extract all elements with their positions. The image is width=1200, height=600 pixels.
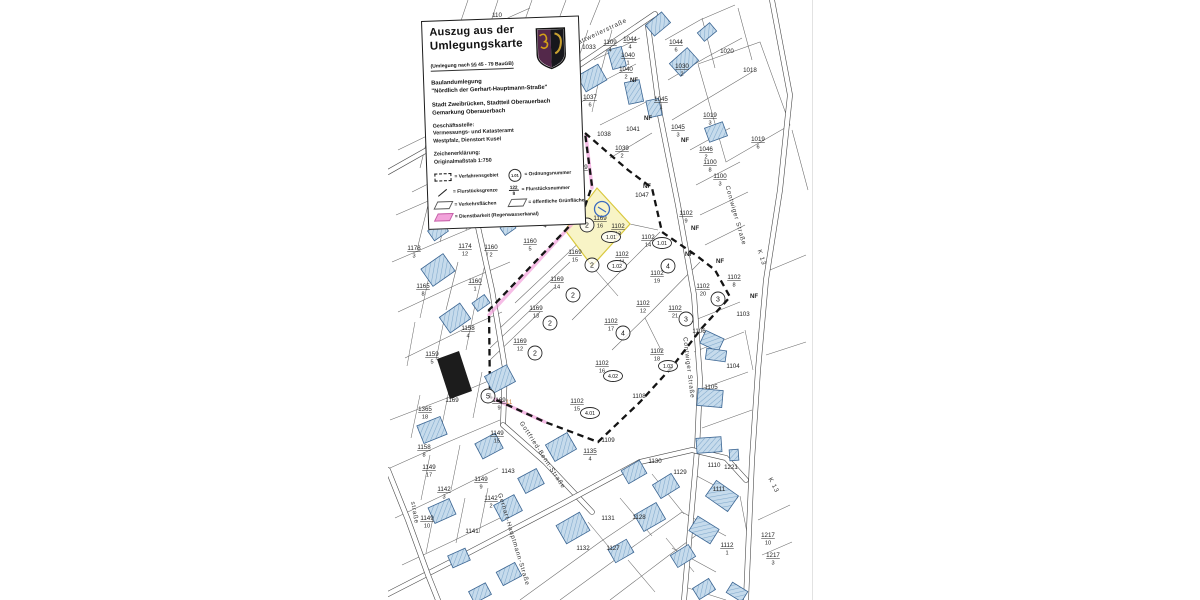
parcel-number: 1039 (615, 145, 629, 152)
parcel-denominator: 20 (700, 292, 706, 298)
parcel-denominator: 9 (479, 485, 482, 491)
legend-item-label: = Flurstücksgrenze (453, 188, 498, 195)
parcel-boundary (770, 255, 806, 270)
parcel-number: 1160 (484, 244, 498, 251)
legend-item-label: = Verkehrsflächen (454, 201, 496, 207)
nf-label: NF (716, 259, 724, 265)
parcel-number: 1149 (474, 476, 488, 483)
legend-symbol-para (434, 213, 454, 222)
parcel-label: 1047 (635, 192, 649, 199)
parcel-denominator: 1 (473, 287, 476, 293)
parcel-number: 1044 (623, 36, 637, 43)
parcel-number: 1102 (696, 283, 710, 290)
parcel-number: 1102 (679, 210, 693, 217)
parcel-boundary (417, 205, 428, 250)
parcel-denominator: 2 (680, 72, 683, 78)
parcel-number: 1169 (568, 249, 582, 256)
parcel-label: 1020 (720, 48, 734, 55)
coat-of-arms (535, 27, 566, 70)
parcel-denominator: 4 (628, 45, 631, 51)
parcel-number: 1165 (416, 283, 430, 290)
parcel-label: 10376 (583, 94, 597, 109)
parcel-label: 1169 (445, 397, 459, 404)
legend-item: = Verkehrsflächen (435, 199, 507, 211)
parcel-number: 1169 (529, 305, 543, 312)
ordnungsnummer-value: 4 (621, 330, 625, 337)
nf-label: NF (644, 116, 652, 122)
parcel-boundary (700, 192, 748, 215)
ordnungsnummer-value: 3 (684, 316, 688, 323)
parcel-denominator: 12 (640, 309, 646, 315)
parcel-denominator: 19 (654, 279, 660, 285)
parcel-label: 11028 (727, 274, 741, 289)
parcel-number: 1102 (615, 251, 629, 258)
building-solid-black (437, 351, 472, 399)
nf-label: NF (685, 252, 693, 258)
parcel-denominator: 15 (574, 407, 580, 413)
parcel-label: 114917 (422, 464, 436, 479)
parcel-denominator: 15 (494, 439, 500, 445)
parcel-label: 11499 (474, 476, 488, 491)
parcel-label: 1141 (465, 528, 479, 535)
parcel-label: 1110 (708, 462, 721, 469)
parcel-number: 1217 (766, 552, 780, 559)
parcel-denominator: 6 (674, 48, 677, 54)
ordnungsnummer-value: 2 (533, 350, 537, 357)
parcel-label: 1130 (648, 458, 662, 465)
ordnungsnummer-value: 4.02 (608, 374, 618, 380)
parcel-denominator: 10 (424, 524, 430, 530)
parcel-denominator: 8 (732, 283, 735, 289)
legend-item: = Flurstücksgrenze (435, 186, 507, 198)
parcel-denominator: 2 (489, 504, 492, 510)
parcel-denominator: 13 (533, 314, 539, 320)
legend-item: 1228= Flurstücksnummer (509, 182, 584, 196)
parcel-label: 1038 (597, 131, 611, 138)
parcel-denominator: 4 (466, 334, 469, 340)
parcel-denominator: 8 (421, 292, 424, 298)
parcel-denominator: 12 (517, 347, 523, 353)
parcel-label: 116914 (550, 276, 564, 291)
parcel-number: 1045 (654, 96, 668, 103)
parcel-label: 110218 (650, 348, 664, 363)
parcel-label: 10453 (671, 124, 685, 139)
parcel-label: 1103 (736, 311, 750, 318)
parcel-number: 1100 (703, 159, 717, 166)
nf-label: NF (630, 78, 638, 84)
building (652, 473, 679, 498)
parcel-label: 116915 (568, 249, 582, 264)
parcel-denominator: 6 (756, 145, 759, 151)
parcel-number: 1030 (675, 63, 689, 70)
parcel-boundary (628, 560, 655, 592)
parcel-label: 1018 (743, 67, 757, 74)
legend-item: = Dienstbarkeit (Regenwasserkanal) (436, 208, 585, 222)
building (577, 64, 607, 92)
legend-item-label: = öffentliche Grünfläche (528, 198, 584, 205)
parcel-denominator: 3 (412, 254, 415, 260)
parcel-label: 11605 (523, 238, 537, 253)
legend-item-label: = Ordnungsnummer (524, 171, 571, 178)
parcel-denominator: 10 (765, 541, 771, 547)
parcel-number: 1102 (570, 398, 584, 405)
legend-symbol-para (433, 201, 453, 210)
legend-item-label: = Verfahrensgebiet (454, 173, 498, 180)
parcel-denominator: 3 (676, 133, 679, 139)
parcel-label: 11658 (416, 283, 430, 298)
parcel-denominator: 16 (597, 224, 603, 230)
nf-label: NF (691, 226, 699, 232)
parcel-denominator: 4 (588, 457, 591, 463)
parcel-label: 11008 (703, 159, 717, 174)
parcel-denominator: 17 (426, 473, 432, 479)
parcel-label: 117412 (458, 243, 472, 258)
ordnungsnummer-value: 2 (548, 320, 552, 327)
ordnungsnummer-value: 2 (571, 292, 575, 299)
parcel-label: 1108 (632, 393, 646, 400)
parcel-label: 110212 (636, 300, 650, 315)
parcel-label: 110219 (650, 270, 664, 285)
parcel-number: 1142 (437, 486, 451, 493)
parcel-number: 1102 (611, 223, 625, 230)
parcel-boundary (745, 330, 753, 370)
parcel-boundary (758, 505, 790, 520)
parcel-denominator: 5 (528, 247, 531, 253)
parcel-denominator: 8 (422, 453, 425, 459)
nf-label: NF (681, 138, 689, 144)
parcel-denominator: 3 (442, 495, 445, 501)
parcel-number: 1102 (668, 305, 682, 312)
parcel-number: 1112 (721, 542, 734, 549)
parcel-label: 1132 (576, 545, 590, 552)
parcel-number: 1109 (603, 39, 617, 46)
building (518, 469, 545, 494)
parcel-boundary (411, 395, 420, 438)
parcel-number: 1102 (595, 360, 609, 367)
building (545, 433, 576, 462)
parcel-number: 1040 (619, 66, 633, 73)
parcel-label: 136518 (418, 406, 432, 421)
parcel-boundary (738, 8, 752, 60)
legend-symbol-para (507, 199, 527, 208)
legend-box: Auszug aus der Umlegungskarte (Umlegung … (421, 15, 586, 229)
parcel-number: 1037 (583, 94, 597, 101)
parcel-denominator: 21 (672, 314, 678, 320)
parcel-number: 1045 (671, 124, 685, 131)
parcel-number: 1044 (669, 39, 683, 46)
ordnungsnummer-value: 1.03 (663, 364, 673, 370)
parcel-denominator: 3 (771, 561, 774, 567)
parcel-number: 1169 (550, 276, 564, 283)
parcel-number: 1174 (458, 243, 472, 250)
parcel-label: 1104 (726, 363, 740, 370)
parcel-denominator: 3 (718, 182, 721, 188)
parcel-label: 116912 (513, 338, 527, 353)
parcel-label: 11588 (417, 444, 431, 459)
parcel-number: 1102 (727, 274, 741, 281)
parcel-denominator: 14 (645, 243, 651, 249)
parcel-boundary (590, 0, 600, 25)
parcel-label: 1128 (632, 514, 646, 521)
building (556, 512, 590, 544)
street-label: Battweilerstraße (572, 17, 628, 48)
parcel-denominator: 18 (654, 357, 660, 363)
parcel-number: 1102 (604, 318, 618, 325)
ordnungsnummer-value: 1.02 (612, 264, 622, 270)
parcel-number: 1217 (761, 532, 775, 539)
parcel-boundary (630, 224, 658, 230)
parcel-denominator: 9 (684, 219, 687, 225)
parcel-boundary (792, 130, 808, 190)
parcel-label: 1105 (704, 384, 718, 391)
legend-symbol-dashed-rect (434, 173, 451, 182)
parcel-label: 1109 (601, 437, 615, 444)
building (692, 578, 715, 599)
legend-title-line2: Umlegungskarte (430, 37, 542, 55)
parcel-denominator: 18 (422, 415, 428, 421)
legend-symbol-list: = Verfahrensgebiet1.01= Ordnungsnummer= … (434, 166, 579, 222)
parcel-label: 10392 (615, 145, 629, 160)
parcel-boundary (702, 410, 752, 428)
parcel-number: 1149 (422, 464, 436, 471)
building (729, 449, 739, 461)
parcel-label: 110220 (696, 283, 710, 298)
parcel-label: 1041 (626, 126, 640, 133)
building (472, 295, 490, 312)
street-label: K 13 (756, 249, 768, 267)
ordnungsnummer-value: 1.01 (657, 241, 667, 247)
parcel-denominator: 5 (430, 360, 433, 366)
building (705, 348, 726, 362)
ordnungsnummer-value: 5 (486, 393, 490, 400)
parcel-label: 10446 (669, 39, 683, 54)
parcel-boundary (456, 498, 465, 543)
parcel-label: 12173 (766, 552, 780, 567)
legend-item: = Verfahrensgebiet (434, 171, 506, 183)
parcel-number: 1100 (713, 173, 727, 180)
parcel-number: 1142 (484, 495, 498, 502)
parcel-denominator: 2 (489, 253, 492, 259)
street-label: Contwiger Straße (681, 337, 695, 399)
legend-symbol-fraction: 1228 (509, 184, 519, 195)
parcel-number: 1158 (417, 444, 431, 451)
parcel-label: 121710 (761, 532, 775, 547)
ordnungsnummer-value: 4 (666, 263, 670, 270)
parcel-denominator: 14 (554, 285, 560, 291)
parcel-denominator: 17 (608, 327, 614, 333)
screenshot-canvas: 1101033110941044410446104011040210376104… (0, 0, 1200, 600)
parcel-denominator: 6 (588, 103, 591, 109)
building (421, 254, 455, 287)
parcel-label: 1129 (673, 469, 687, 476)
parcel-number: 1102 (650, 348, 664, 355)
building (469, 583, 492, 600)
parcel-number: 1160 (468, 278, 482, 285)
ordnungsnummer-value: 2 (590, 262, 594, 269)
parcel-number: 1019 (751, 136, 765, 143)
parcel-label: 11584 (461, 325, 475, 340)
parcel-number: 1160 (523, 238, 537, 245)
parcel-denominator: 12 (462, 252, 468, 258)
parcel-denominator: 2 (620, 154, 623, 160)
parcel-number: 1102 (650, 270, 664, 277)
legend-symbol-circle-number: 1.01 (508, 168, 521, 181)
parcel-number: 1158 (461, 325, 475, 332)
ordnungsnummer-value: 3 (716, 296, 720, 303)
legend-item: = öffentliche Grünfläche (509, 196, 584, 208)
parcel-boundary (766, 342, 806, 355)
parcel-boundary (600, 100, 650, 125)
parcel-number: 1149 (420, 515, 434, 522)
pen-mark-text: 11 (506, 400, 513, 406)
building (697, 23, 716, 42)
parcel-number: 1046 (699, 146, 713, 153)
parcel-number: 1102 (636, 300, 650, 307)
parcel-label: 1143 (501, 468, 515, 475)
parcel-number: 1178 (407, 245, 421, 252)
parcel-number: 1169 (513, 338, 527, 345)
road-casing (746, 0, 790, 600)
parcel-label: 1033 (582, 44, 596, 51)
parcel-label: 11595 (425, 351, 439, 366)
parcel-denominator: 3 (708, 121, 711, 127)
building (696, 437, 722, 454)
building (697, 388, 723, 407)
parcel-denominator: 15 (572, 258, 578, 264)
parcel-denominator: 9 (497, 406, 500, 412)
parcel-denominator: 1 (725, 551, 728, 557)
scanned-map-page: 1101033110941044410446104011040210376104… (388, 0, 813, 600)
parcel-number: 1135 (583, 448, 597, 455)
parcel-denominator: 8 (708, 168, 711, 174)
parcel-label: 1111 (713, 486, 726, 493)
legend-symbol-slash (438, 189, 447, 197)
parcel-denominator: 1 (659, 105, 662, 111)
legend-subtitle: (Umlegung nach §§ 45 - 79 BauGB) (430, 60, 513, 71)
parcel-number: 1149 (490, 430, 504, 437)
parcel-label: 1127 (606, 545, 620, 552)
parcel-label: 116913 (529, 305, 543, 320)
parcel-number: 1040 (621, 52, 635, 59)
parcel-label: 1106 (692, 328, 706, 335)
parcel-label: 11121 (720, 542, 734, 557)
parcel-boundary (451, 445, 460, 490)
parcel-denominator: 4 (608, 48, 611, 54)
parcel-number: 1159 (425, 351, 439, 358)
parcel-label: 10444 (623, 36, 637, 51)
parcel-boundary (407, 322, 415, 366)
parcel-denominator: 2 (624, 75, 627, 81)
legend-item-label: = Dienstbarkeit (Regenwasserkanal) (455, 212, 539, 220)
nf-label: NF (643, 184, 651, 190)
parcel-number: 1102 (641, 234, 655, 241)
parcel-boundary (645, 318, 662, 352)
parcel-number: 1019 (703, 112, 717, 119)
ordnungsnummer-value: 1.01 (606, 235, 616, 241)
parcel-number: 1365 (418, 406, 432, 413)
street-label: K 13 (766, 477, 780, 495)
parcel-boundary (698, 42, 790, 162)
legend-item-label: = Flurstücksnummer (522, 186, 570, 193)
parcel-label: 11354 (583, 448, 597, 463)
parcel-label: 1131 (601, 515, 615, 522)
ordnungsnummer-value: 4.01 (585, 411, 595, 417)
parcel-label: 1221 (724, 464, 738, 471)
nf-label: NF (750, 294, 758, 300)
legend-item: 1.01= Ordnungsnummer (508, 166, 584, 182)
